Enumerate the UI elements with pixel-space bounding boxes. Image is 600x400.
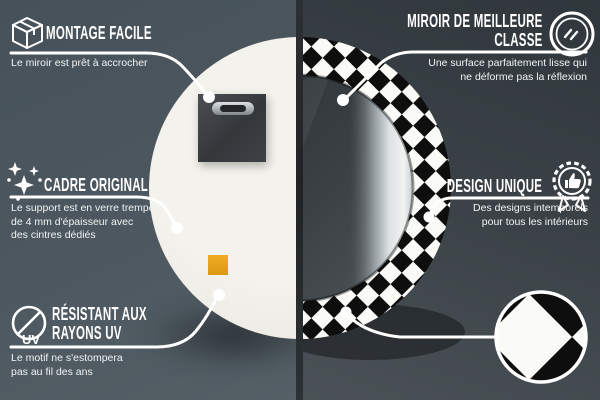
- thumbs-up-glyph: [565, 173, 581, 188]
- callout-title-uv: RÉSISTANT AUX RAYONS UV: [52, 305, 147, 343]
- split-divider: [296, 0, 303, 400]
- uv-icon-label: UV: [22, 332, 40, 347]
- mirror-back-panel: [149, 37, 297, 339]
- callout-desc-miroir: Une surface parfaitement lisse qui ne dé…: [357, 57, 587, 84]
- callout-title-montage: MONTAGE FACILE: [46, 24, 152, 43]
- orange-sticker: [208, 255, 228, 275]
- callout-title-miroir: MIROIR DE MEILLEURE CLASSE: [408, 12, 543, 50]
- sparkles-icon: [4, 158, 44, 202]
- callout-desc-uv: Le motif ne s'estompera pas au fil des a…: [11, 352, 211, 379]
- uv-resistant-icon: UV: [10, 303, 52, 347]
- callout-desc-cadre: Le support est en verre trempé de 4 mm d…: [11, 202, 211, 243]
- product-infographic: UV MONTAGE FACILE Le miroir est prêt à a…: [0, 0, 600, 400]
- hanger-bracket: [212, 102, 254, 115]
- package-box-icon: [9, 13, 46, 50]
- mirror-icon: [548, 10, 596, 58]
- mounting-plate: [198, 94, 266, 162]
- callout-title-cadre: CADRE ORIGINAL: [44, 176, 148, 195]
- callout-title-design: DESIGN UNIQUE: [447, 177, 543, 196]
- callout-desc-montage: Le miroir est prêt à accrocher: [11, 57, 221, 71]
- callout-desc-design: Des designs intemporels pour tous les in…: [368, 202, 588, 229]
